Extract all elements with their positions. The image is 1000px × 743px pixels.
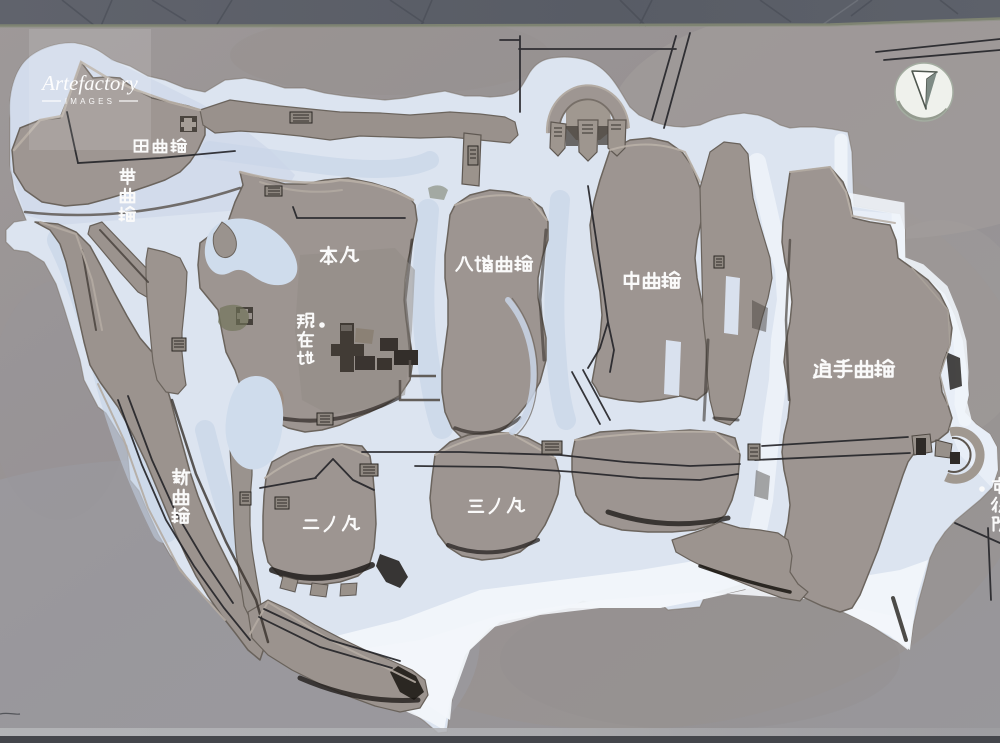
svg-text:IMAGES: IMAGES: [65, 97, 115, 106]
svg-text:Artefactory: Artefactory: [40, 71, 138, 95]
